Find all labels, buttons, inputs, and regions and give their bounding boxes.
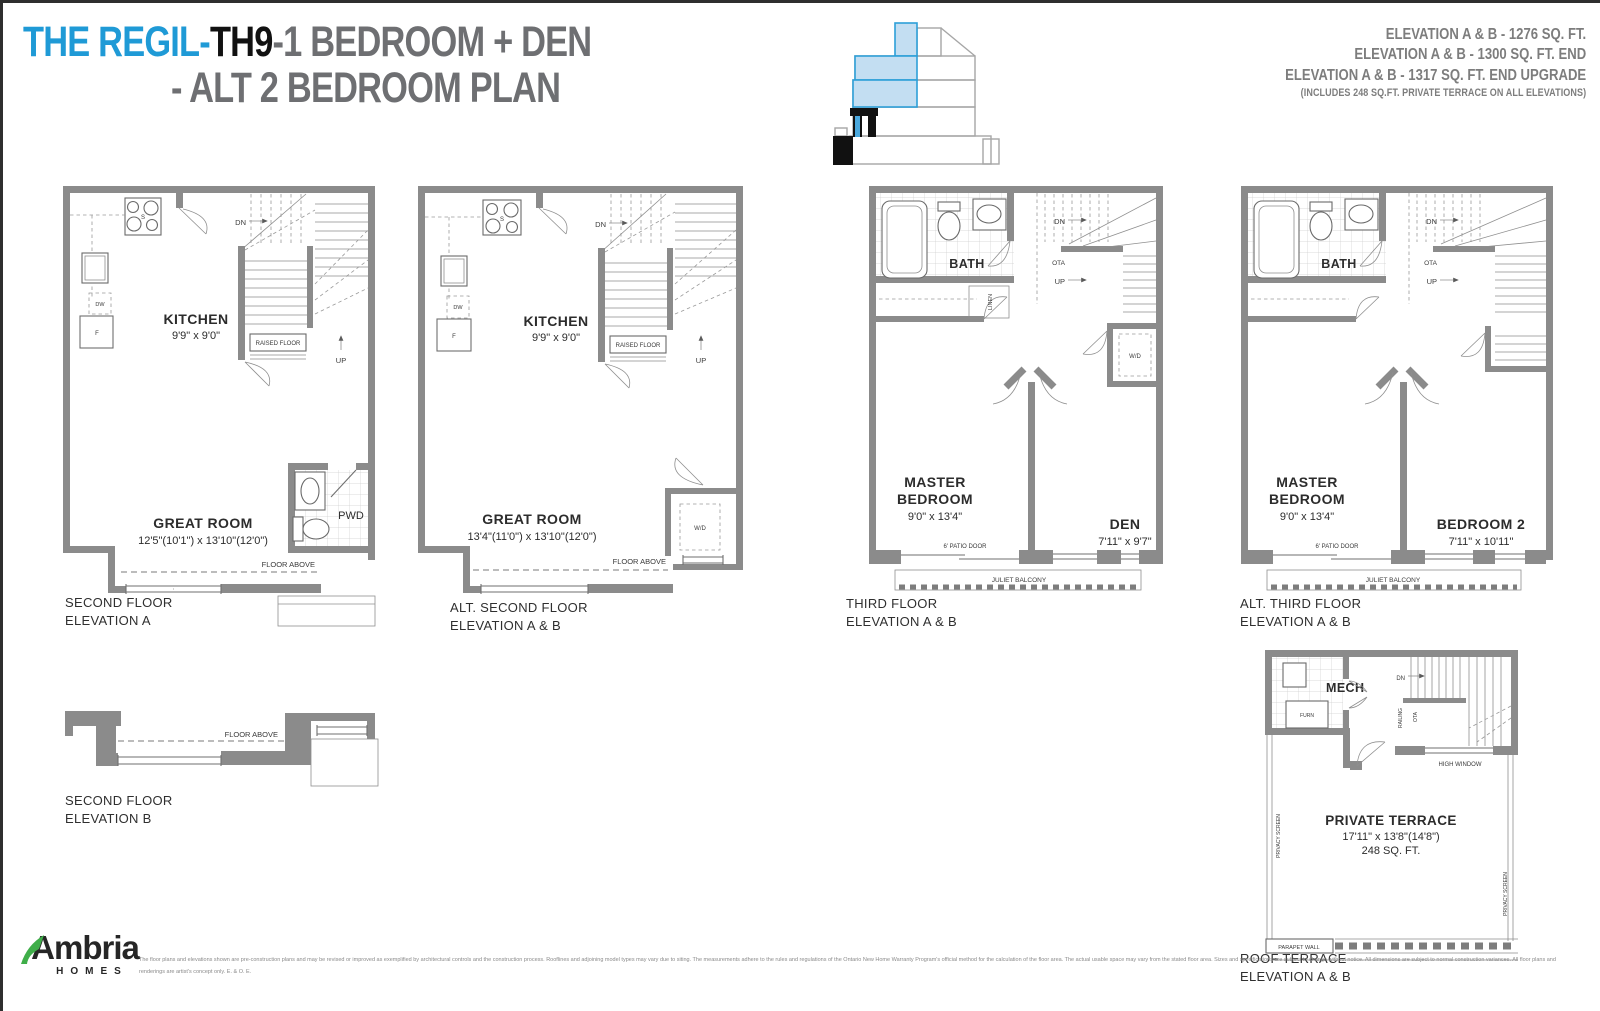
logo-leaf-icon <box>19 933 45 967</box>
title-model: TH9 <box>210 18 273 66</box>
page-title: THE REGIL-TH9-1 BEDROOM + DEN - ALT 2 BE… <box>23 19 591 111</box>
ota-label: OTA <box>1052 260 1066 267</box>
dn-label: DN <box>595 220 606 229</box>
caption-line2: ELEVATION B <box>65 810 173 828</box>
up-label: UP <box>696 356 706 365</box>
caption-line2: ELEVATION A & B <box>846 613 957 631</box>
caption-third-floor: THIRD FLOOR ELEVATION A & B <box>846 595 957 631</box>
plan-roof-terrace: FURN MECH DN RAILING OTA HIGH WINDOW PRI… <box>1265 636 1525 971</box>
caption-line1: ALT. THIRD FLOOR <box>1240 595 1361 613</box>
caption-line2: ELEVATION A <box>65 612 173 630</box>
legal-disclaimer: The floor plans and elevations shown are… <box>139 955 1559 978</box>
washer-dryer-label: W/D <box>1129 354 1141 360</box>
caption-alt-second-floor: ALT. SECOND FLOOR ELEVATION A & B <box>450 599 588 635</box>
up-label: UP <box>1427 277 1437 286</box>
plan-alt-second-floor: RAISED FLOOR DN UP S DW F KITCHEN 9'9" x… <box>418 186 750 631</box>
dishwasher-label: DW <box>95 302 105 308</box>
title-brand: THE REGIL- <box>23 18 210 66</box>
great-room-label: GREAT ROOM <box>153 515 252 531</box>
dn-label: DN <box>1426 217 1437 226</box>
fridge-label: F <box>452 334 456 340</box>
den-dims: 7'11" x 9'7" <box>1098 536 1151 548</box>
floor-above-label: FLOOR ABOVE <box>262 560 315 569</box>
elevation-summary: ELEVATION A & B - 1276 SQ. FT. ELEVATION… <box>1285 25 1586 100</box>
caption-alt-third-floor: ALT. THIRD FLOOR ELEVATION A & B <box>1240 595 1361 631</box>
linen-label: LINEN <box>988 294 994 310</box>
elevation-line-3: ELEVATION A & B - 1317 SQ. FT. END UPGRA… <box>1285 66 1586 86</box>
den-label: DEN <box>1110 516 1141 532</box>
elevation-line-2: ELEVATION A & B - 1300 SQ. FT. END <box>1285 45 1586 65</box>
logo-sub-text: HOMES <box>39 966 145 977</box>
key-plan-unit-top <box>895 23 917 56</box>
private-terrace-label: PRIVATE TERRACE <box>1325 813 1457 828</box>
elevation-note: (INCLUDES 248 SQ.FT. PRIVATE TERRACE ON … <box>1285 86 1586 100</box>
dn-label: DN <box>1054 217 1065 226</box>
furnace-label: FURN <box>1300 713 1314 719</box>
floor-above-label: FLOOR ABOVE <box>613 557 666 566</box>
master-bedroom-label2: BEDROOM <box>897 491 973 507</box>
plan-second-floor-a: RAISED FLOOR DN UP S DW F KITCHEN 9'9" x… <box>63 186 378 631</box>
caption-line1: SECOND FLOOR <box>65 792 173 810</box>
juliet-balcony-label: JULIET BALCONY <box>1366 577 1421 584</box>
key-plan-unit-mid <box>855 56 917 80</box>
raised-floor-label: RAISED FLOOR <box>256 341 301 347</box>
bath-label: BATH <box>1321 257 1356 271</box>
private-terrace-area: 248 SQ. FT. <box>1362 845 1421 857</box>
bedroom2-label: BEDROOM 2 <box>1437 516 1525 532</box>
title-line2: - ALT 2 BEDROOM PLAN <box>171 65 591 111</box>
bedroom2-dims: 7'11" x 10'11" <box>1449 536 1514 548</box>
caption-line2: ELEVATION A & B <box>450 617 588 635</box>
patio-door-label: 6' PATIO DOOR <box>944 544 988 550</box>
privacy-screen-left-label: PRIVACY SCREEN <box>1276 814 1282 858</box>
raised-floor-label: RAISED FLOOR <box>616 343 661 349</box>
floorplan-sheet: THE REGIL-TH9-1 BEDROOM + DEN - ALT 2 BE… <box>0 0 1600 1011</box>
caption-line1: ALT. SECOND FLOOR <box>450 599 588 617</box>
floor-above-label: FLOOR ABOVE <box>225 730 278 739</box>
dishwasher-label: DW <box>453 305 463 311</box>
high-window-label: HIGH WINDOW <box>1439 762 1482 768</box>
key-plan-unit-low <box>853 80 917 107</box>
plan-second-floor-b: FLOOR ABOVE <box>63 691 388 791</box>
fridge-label: F <box>95 331 99 337</box>
stove-label: S <box>500 217 504 223</box>
title-desc: -1 BEDROOM + DEN <box>273 18 592 66</box>
kitchen-label: KITCHEN <box>523 313 588 329</box>
caption-line2: ELEVATION A & B <box>1240 613 1361 631</box>
caption-line1: SECOND FLOOR <box>65 594 173 612</box>
railing-label: RAILING <box>1398 708 1404 728</box>
ambria-logo: Ambria HOMES <box>25 931 145 977</box>
up-label: UP <box>336 356 346 365</box>
master-bedroom-dims: 9'0" x 13'4" <box>908 511 962 523</box>
juliet-balcony-label: JULIET BALCONY <box>992 577 1047 584</box>
great-room-dims: 12'5"(10'1") x 13'10"(12'0") <box>138 535 268 547</box>
plan-alt-third-floor: BATH DN OTA UP MASTER BEDROOM 9'0" x 13'… <box>1241 186 1553 598</box>
caption-second-floor-a: SECOND FLOOR ELEVATION A <box>65 594 173 630</box>
title-line1: THE REGIL-TH9-1 BEDROOM + DEN <box>23 19 591 65</box>
great-room-label: GREAT ROOM <box>482 511 581 527</box>
dn-label: DN <box>1396 676 1405 682</box>
kitchen-dims: 9'9" x 9'0" <box>172 330 220 342</box>
kitchen-dims: 9'9" x 9'0" <box>532 332 580 344</box>
up-label: UP <box>1055 277 1065 286</box>
master-bedroom-dims: 9'0" x 13'4" <box>1280 511 1334 523</box>
kitchen-label: KITCHEN <box>163 311 228 327</box>
ota-label: OTA <box>1424 260 1438 267</box>
caption-line1: THIRD FLOOR <box>846 595 957 613</box>
washer-dryer-label: W/D <box>694 526 706 532</box>
caption-second-floor-b: SECOND FLOOR ELEVATION B <box>65 792 173 828</box>
stove-label: S <box>141 215 145 221</box>
privacy-screen-right-label: PRIVACY SCREEN <box>1503 872 1509 916</box>
bath-label: BATH <box>949 257 984 271</box>
private-terrace-dims: 17'11" x 13'8"(14'8") <box>1342 831 1439 843</box>
plan-third-floor: BATH LINEN DN OTA UP W/D MASTER BEDROOM … <box>869 186 1169 598</box>
patio-door-label: 6' PATIO DOOR <box>1316 544 1360 550</box>
master-bedroom-label1: MASTER <box>904 474 966 490</box>
key-plan <box>811 11 1006 171</box>
dn-label: DN <box>235 218 246 227</box>
master-bedroom-label2: BEDROOM <box>1269 491 1345 507</box>
elevation-line-1: ELEVATION A & B - 1276 SQ. FT. <box>1285 25 1586 45</box>
master-bedroom-label1: MASTER <box>1276 474 1338 490</box>
great-room-dims: 13'4"(11'0") x 13'10"(12'0") <box>468 531 597 543</box>
powder-room-label: PWD <box>338 510 364 522</box>
mech-label: MECH <box>1326 681 1364 695</box>
ota-label: OTA <box>1413 711 1419 722</box>
